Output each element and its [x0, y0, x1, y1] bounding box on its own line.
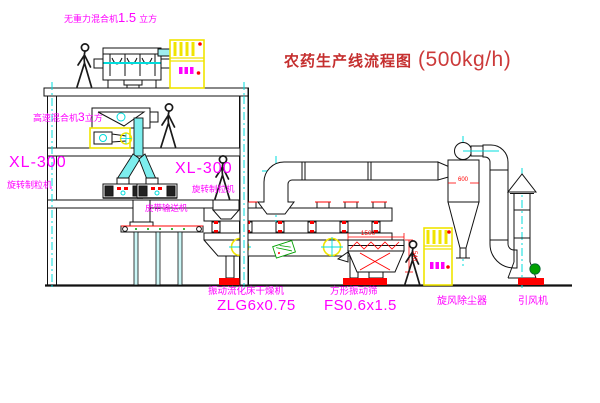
dim-screen-height: 540 [411, 251, 417, 262]
vibration-springs [212, 221, 380, 233]
drawing-title: 农药生产线流程图(500kg/h) [284, 49, 511, 70]
dim-screen-length: 1500 [361, 230, 376, 237]
label-screen-name: 方形振动筛 [330, 287, 378, 297]
label-dryer-model: ZLG6x0.75 [217, 298, 296, 313]
control-cabinet-top [170, 40, 204, 88]
label-dryer-name: 振动流化床干燥机 [208, 287, 284, 297]
label-granulator-left-name: 旋转制粒机 [7, 181, 52, 190]
fan-motor [530, 264, 540, 274]
label-cyclone: 旋风除尘器 [437, 297, 487, 307]
dryer-foot [219, 278, 241, 285]
control-panel-marks [179, 67, 194, 74]
indicator-lamp-icon [447, 230, 451, 234]
label-granulator-left-model: XL-300 [9, 155, 67, 171]
cad-flow-diagram: 1500 540 600 农药生产线流程图(500kg/h) 无重力混合机1.5… [0, 0, 600, 403]
control-panel-marks [430, 262, 445, 269]
label-granulator-center-model: XL-300 [175, 161, 233, 177]
granulator-right-unit [137, 178, 177, 198]
label-fan: 引风机 [518, 297, 548, 307]
indicator-lamp-icon [446, 265, 450, 269]
indicator-lamp-icon [197, 71, 201, 75]
building-column-front [240, 96, 248, 289]
fan-base [518, 278, 544, 285]
stack-cap [508, 174, 536, 192]
dim-cyclone: 600 [458, 177, 469, 183]
conveyor-leg [156, 232, 160, 285]
cyclone-separator [448, 136, 483, 266]
floor-slab-top [44, 88, 248, 96]
control-cabinet-dryer [424, 228, 452, 285]
person-figure-ground [405, 241, 420, 284]
conveyor-leg [134, 232, 138, 285]
label-granulator-center-name: 旋转制粒机 [192, 185, 235, 194]
conveyor-leg [178, 232, 182, 285]
person-figure-second-floor [161, 104, 176, 147]
gravity-free-mixer [94, 48, 172, 88]
floor-slab-2 [48, 148, 249, 156]
indicator-lamp-icon [198, 42, 202, 46]
label-belt-conveyor: 皮带输送机 [145, 204, 188, 213]
label-gravity-mixer: 无重力混合机1.5立方 [64, 10, 157, 26]
label-screen-model: FS0.6x1.5 [324, 298, 397, 313]
screen-foot [365, 278, 387, 285]
title-zh: 农药生产线流程图 [284, 53, 412, 70]
label-high-speed-mixer: 高速混合机3立方 [33, 109, 103, 125]
vibrating-screen [338, 233, 413, 285]
dryer-foot [343, 278, 365, 285]
person-figure-top-floor [77, 44, 92, 87]
title-capacity: (500kg/h) [418, 48, 511, 71]
